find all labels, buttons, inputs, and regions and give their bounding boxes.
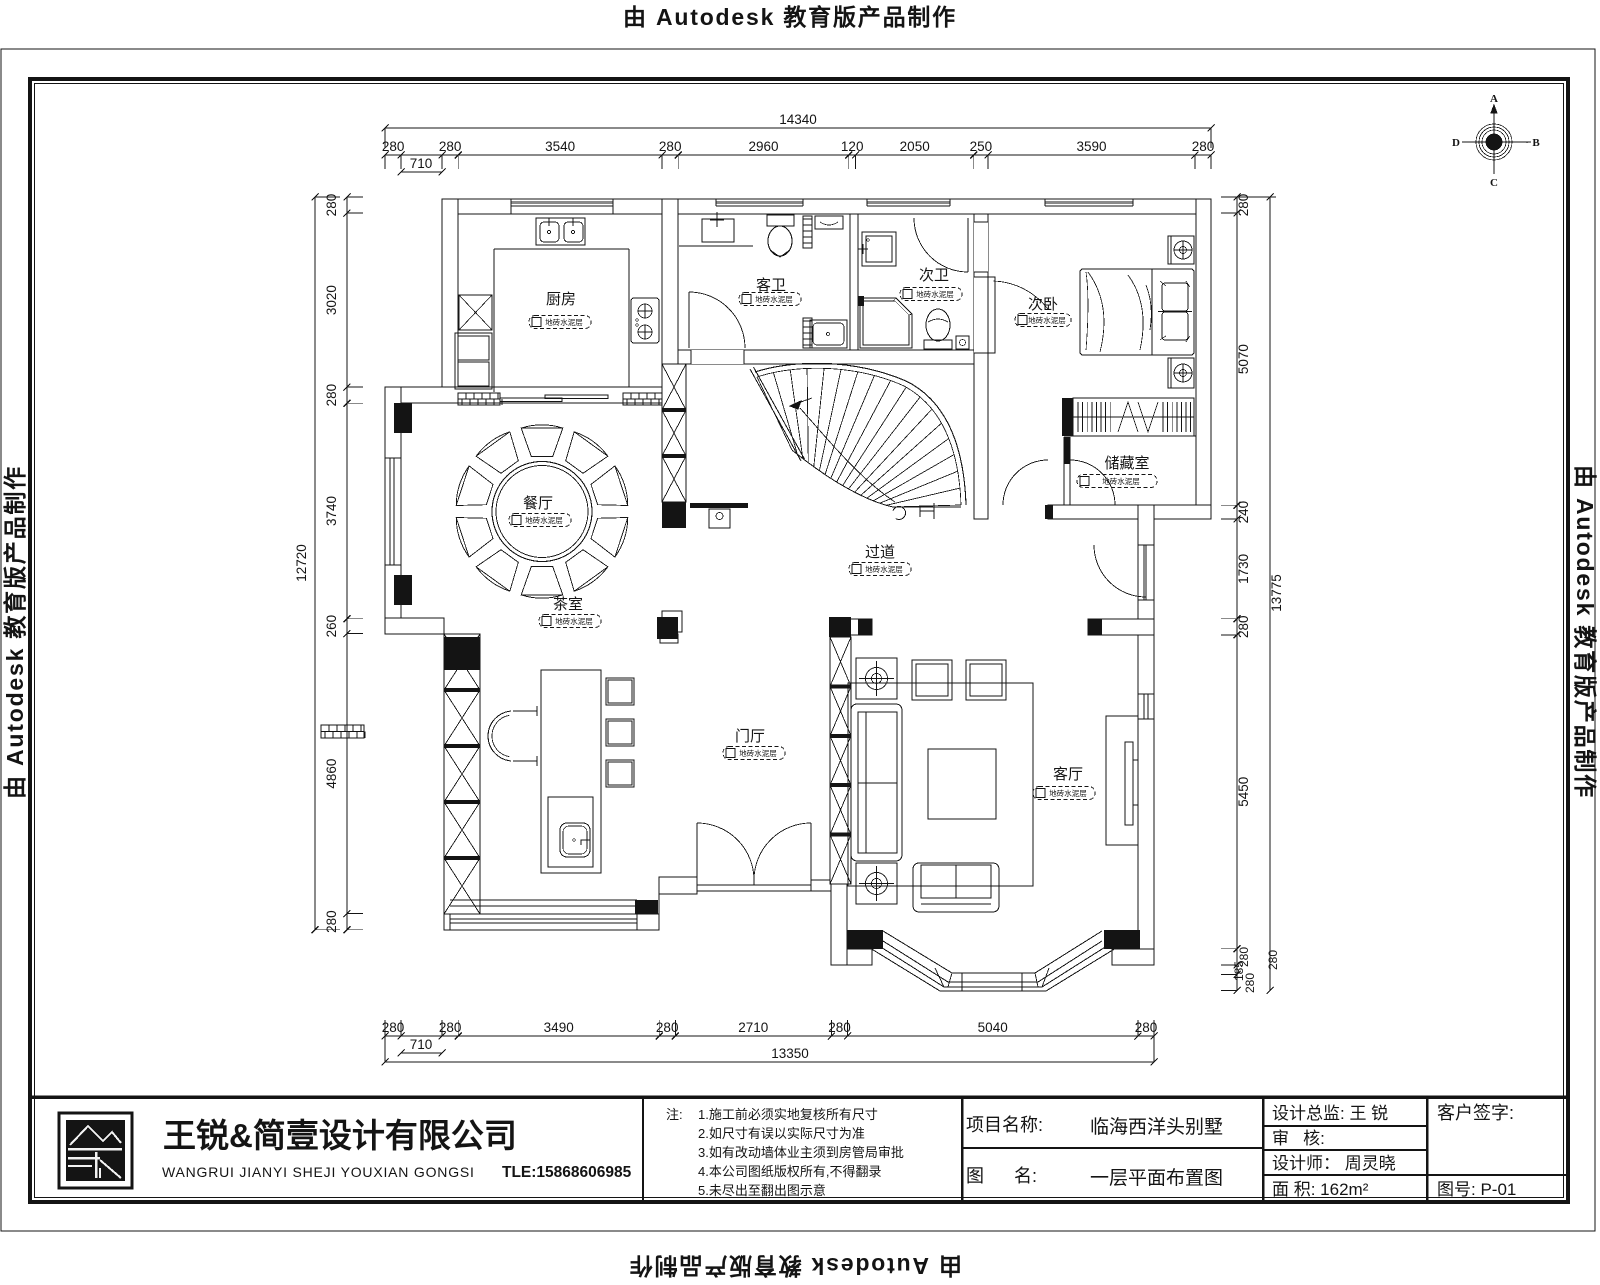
svg-text:由 Autodesk 教育版产品制作: 由 Autodesk 教育版产品制作	[2, 465, 28, 799]
svg-text:图 名:: 图 名:	[966, 1166, 1037, 1186]
svg-text:客厅: 客厅	[1053, 766, 1083, 783]
svg-text:临海西洋头别墅: 临海西洋头别墅	[1090, 1116, 1223, 1138]
svg-text:3490: 3490	[544, 1020, 574, 1035]
svg-text:3540: 3540	[545, 139, 575, 154]
svg-text:过道: 过道	[865, 544, 895, 561]
svg-text:2.如尺寸有误以实际尺寸为准: 2.如尺寸有误以实际尺寸为准	[698, 1126, 865, 1141]
svg-text:面 积: 162m²: 面 积: 162m²	[1272, 1180, 1369, 1199]
svg-text:250: 250	[970, 139, 993, 154]
svg-text:5.未尽出至翻出图示意: 5.未尽出至翻出图示意	[698, 1183, 826, 1198]
svg-text:地砖水泥层: 地砖水泥层	[865, 564, 903, 574]
svg-text:王锐&简壹设计有限公司: 王锐&简壹设计有限公司	[163, 1117, 517, 1154]
svg-text:710: 710	[410, 1037, 433, 1052]
svg-text:设计总监: 王 锐: 设计总监: 王 锐	[1272, 1104, 1388, 1123]
svg-text:地砖水泥层: 地砖水泥层	[755, 294, 793, 304]
svg-text:280: 280	[828, 1020, 851, 1035]
svg-text:客户签字:: 客户签字:	[1437, 1103, 1514, 1123]
svg-text:设计师： 周灵晓: 设计师： 周灵晓	[1272, 1154, 1396, 1173]
svg-text:地砖水泥层: 地砖水泥层	[1102, 476, 1140, 486]
svg-text:茶室: 茶室	[553, 596, 583, 613]
svg-text:3740: 3740	[324, 496, 339, 526]
svg-text:4.本公司图纸版权所有,不得翻录: 4.本公司图纸版权所有,不得翻录	[698, 1164, 881, 1179]
svg-text:餐厅: 餐厅	[523, 495, 553, 512]
svg-text:4860: 4860	[324, 759, 339, 789]
svg-text:1.施工前必须实地复核所有尺寸: 1.施工前必须实地复核所有尺寸	[698, 1107, 878, 1122]
svg-text:280: 280	[439, 139, 462, 154]
svg-text:280: 280	[439, 1020, 462, 1035]
svg-text:3.如有改动墙体业主须到房管局审批: 3.如有改动墙体业主须到房管局审批	[698, 1145, 904, 1160]
svg-text:由 Autodesk 教育版产品制作: 由 Autodesk 教育版产品制作	[623, 4, 957, 30]
svg-text:2050: 2050	[900, 139, 930, 154]
svg-text:注:: 注:	[666, 1107, 683, 1122]
svg-text:项目名称:: 项目名称:	[966, 1115, 1043, 1135]
svg-text:一层平面布置图: 一层平面布置图	[1090, 1167, 1223, 1189]
svg-text:由 Autodesk 教育版产品制作: 由 Autodesk 教育版产品制作	[628, 1253, 962, 1279]
svg-text:次卧: 次卧	[1028, 296, 1058, 313]
svg-text:地砖水泥层: 地砖水泥层	[555, 616, 593, 626]
svg-text:3020: 3020	[324, 285, 339, 315]
svg-text:5070: 5070	[1236, 344, 1251, 374]
svg-text:次卫: 次卫	[919, 267, 949, 284]
svg-text:·: ·	[1525, 137, 1528, 148]
svg-text:280: 280	[1236, 615, 1251, 638]
svg-text:TLE:15868606985: TLE:15868606985	[502, 1164, 632, 1181]
svg-text:710: 710	[410, 156, 433, 171]
svg-text:13775: 13775	[1269, 574, 1284, 612]
svg-text:地砖水泥层: 地砖水泥层	[1049, 788, 1087, 798]
svg-text:240: 240	[1236, 501, 1251, 524]
svg-text:5450: 5450	[1236, 777, 1251, 807]
svg-text:厨房: 厨房	[546, 291, 576, 308]
svg-text:地砖水泥层: 地砖水泥层	[739, 748, 777, 758]
svg-text:B: B	[1532, 137, 1540, 149]
svg-text:280: 280	[1135, 1020, 1158, 1035]
svg-text:C: C	[1490, 177, 1498, 189]
svg-text:门厅: 门厅	[735, 728, 765, 745]
svg-text:2710: 2710	[738, 1020, 768, 1035]
svg-text:1730: 1730	[1236, 554, 1251, 584]
svg-text:WANGRUI JIANYI SHEJI YOUXIAN G: WANGRUI JIANYI SHEJI YOUXIAN GONGSI	[162, 1164, 475, 1180]
svg-text:3590: 3590	[1076, 139, 1106, 154]
svg-text:120: 120	[841, 139, 864, 154]
svg-text:12720: 12720	[294, 544, 309, 582]
svg-text:储藏室: 储藏室	[1104, 455, 1149, 472]
svg-text:280: 280	[382, 1020, 405, 1035]
svg-text:280: 280	[324, 384, 339, 407]
svg-text:260: 260	[324, 615, 339, 638]
svg-text:图号: P-01: 图号: P-01	[1437, 1180, 1516, 1199]
svg-text:D: D	[1452, 137, 1460, 149]
svg-text:地砖水泥层: 地砖水泥层	[916, 289, 954, 299]
svg-text:5040: 5040	[978, 1020, 1008, 1035]
svg-text:280: 280	[1243, 973, 1257, 993]
svg-text:280: 280	[1266, 950, 1280, 970]
svg-text:2960: 2960	[748, 139, 778, 154]
svg-text:280: 280	[656, 1020, 679, 1035]
svg-text:13350: 13350	[771, 1046, 809, 1061]
svg-text:14340: 14340	[779, 112, 817, 127]
svg-text:A: A	[1490, 93, 1498, 105]
svg-text:地砖水泥层: 地砖水泥层	[545, 317, 583, 327]
svg-text:280: 280	[659, 139, 682, 154]
svg-text:地砖水泥层: 地砖水泥层	[1028, 315, 1066, 325]
svg-text:审 核:: 审 核:	[1272, 1129, 1325, 1148]
svg-text:客卫: 客卫	[756, 277, 786, 294]
svg-text:由 Autodesk 教育版产品制作: 由 Autodesk 教育版产品制作	[1572, 465, 1598, 799]
svg-text:地砖水泥层: 地砖水泥层	[525, 515, 563, 525]
